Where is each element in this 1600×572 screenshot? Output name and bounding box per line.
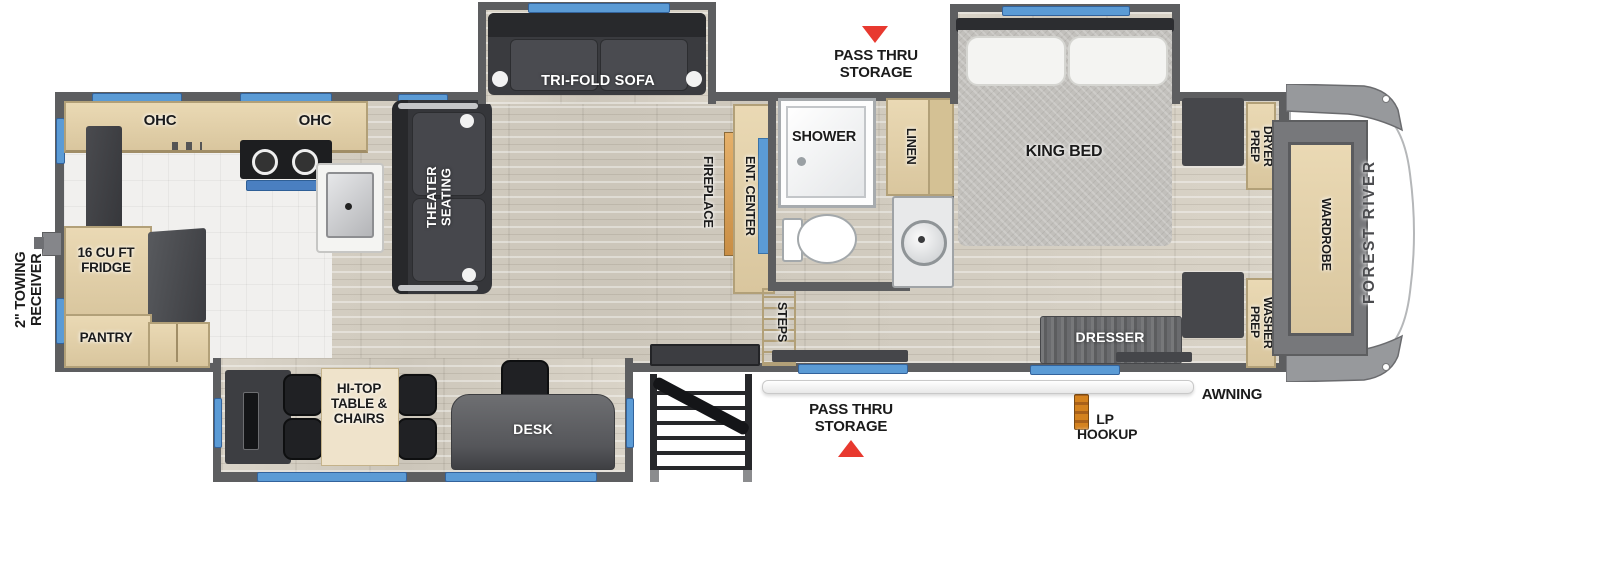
washer-prep-label: WASHER PREP (1238, 297, 1274, 347)
cupholder-icon (460, 114, 474, 128)
brand-label: FOREST RIVER (1361, 122, 1387, 342)
armrest-trim (398, 285, 478, 291)
floorplan-canvas: OHC OHC 16 CU FT FRIDGE PANTRY THEATER S… (0, 0, 1600, 572)
sofa-back (392, 100, 408, 294)
window (1002, 6, 1130, 16)
ohc-right-label: OHC (275, 113, 355, 130)
bedroom-cabinet (1182, 98, 1244, 166)
pantry-label: PANTRY (66, 331, 146, 346)
wardrobe-label: WARDROBE (1312, 154, 1332, 314)
sofa-back (488, 13, 706, 37)
toilet-bowl (797, 214, 857, 264)
desk-label: DESK (483, 422, 583, 437)
towing-receiver-label: 2" TOWING RECEIVER (14, 230, 62, 350)
sofa-slideout: TRI-FOLD SOFA (478, 2, 716, 104)
bath-wall (768, 95, 776, 291)
chair (397, 374, 437, 416)
window-sill (772, 350, 908, 362)
armrest-trim (398, 103, 478, 109)
linen-side-cabinet (928, 98, 954, 196)
pillow (966, 36, 1066, 86)
vanity-sink-icon (901, 220, 947, 266)
entry-door (650, 344, 760, 366)
tall-cabinet (86, 126, 122, 234)
fridge-label: 16 CU FT FRIDGE (68, 246, 144, 276)
window (214, 398, 222, 448)
step-foot (743, 470, 752, 482)
step-rail (745, 374, 752, 470)
window (1030, 365, 1120, 375)
dresser-label: DRESSER (1070, 330, 1150, 345)
awning-bar (762, 380, 1194, 394)
cabinet-door-line (176, 324, 178, 362)
burner-icon (292, 149, 318, 175)
shower-label: SHOWER (781, 130, 867, 146)
window (445, 472, 597, 482)
tri-fold-sofa-label: TRI-FOLD SOFA (518, 74, 678, 90)
hi-top-label: HI-TOP TABLE & CHAIRS (325, 382, 393, 427)
pillow (1068, 36, 1168, 86)
entry-steps (650, 372, 752, 476)
linen-label: LINEN (897, 108, 917, 184)
base-cabinet (148, 322, 210, 368)
bath-wall (768, 282, 910, 291)
chair (397, 418, 437, 460)
tv-cabinet (225, 370, 291, 464)
fridge-front (148, 228, 206, 326)
pass-thru-arrow-icon (838, 440, 864, 457)
faucet-icon (345, 203, 352, 210)
lp-hookup-label: LP HOOKUP (1077, 412, 1133, 443)
king-bed-label: KING BED (1014, 143, 1114, 161)
awning-label: AWNING (1196, 387, 1268, 404)
steps-label: STEPS (768, 292, 788, 352)
window (528, 3, 670, 13)
fireplace-label: FIREPLACE (695, 129, 715, 255)
sofa-arm-icon (686, 71, 702, 87)
pass-thru-bottom-label: PASS THRU STORAGE (795, 402, 907, 435)
ent-center-label: ENT. CENTER (736, 126, 756, 266)
shower (778, 98, 876, 208)
theater-seating-label: THEATER SEATING (425, 164, 471, 230)
ohc-left-label: OHC (120, 113, 200, 130)
vanity-faucet-icon (918, 236, 925, 243)
shower-drain-icon (797, 157, 806, 166)
step-foot (650, 470, 659, 482)
faucet-icon (172, 142, 202, 150)
window (257, 472, 407, 482)
cupholder-icon (462, 268, 476, 282)
burner-icon (252, 149, 278, 175)
tv-icon (243, 392, 259, 450)
rear-slideout: HI-TOP TABLE & CHAIRS DESK (213, 358, 633, 482)
chair (283, 418, 323, 460)
chair (283, 374, 323, 416)
window-sill (1116, 352, 1192, 362)
shower-pan (786, 106, 866, 198)
window (626, 398, 634, 448)
bedroom-cabinet (1182, 272, 1244, 338)
dryer-prep-label: DRYER PREP (1238, 123, 1274, 169)
window (798, 364, 908, 374)
sofa-arm-icon (492, 71, 508, 87)
pass-thru-top-label: PASS THRU STORAGE (820, 48, 932, 81)
pass-thru-arrow-icon (862, 26, 888, 43)
